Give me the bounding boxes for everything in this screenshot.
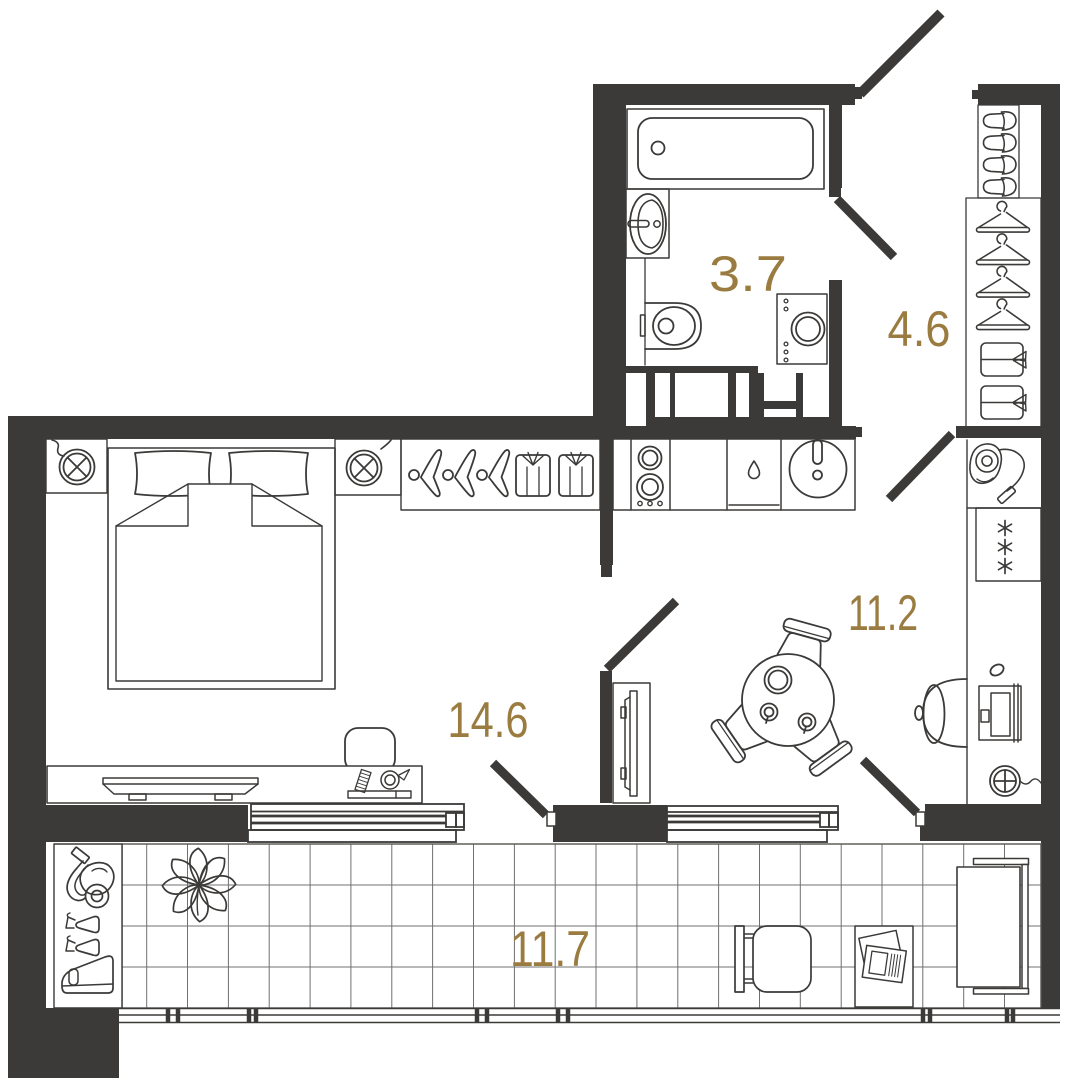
svg-text:11.7: 11.7 xyxy=(510,921,590,977)
svg-text:14.6: 14.6 xyxy=(448,692,529,748)
svg-text:3.7: 3.7 xyxy=(709,246,787,302)
svg-text:11.2: 11.2 xyxy=(848,585,918,641)
svg-text:4.6: 4.6 xyxy=(888,301,951,357)
